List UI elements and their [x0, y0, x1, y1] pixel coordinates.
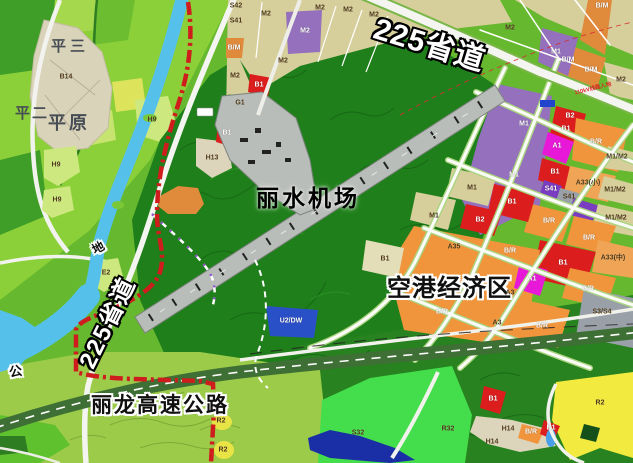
- river-island: [143, 114, 157, 122]
- parcel-R2-small: [214, 441, 234, 459]
- parcel-R2: [552, 372, 633, 460]
- parcel-M2-purple: [286, 10, 322, 54]
- parcel-BM: [226, 38, 244, 58]
- parcel-U2DW: [266, 306, 318, 338]
- station-chip: [540, 100, 555, 107]
- bridge-label-chip: [197, 108, 213, 116]
- map-canvas: [0, 0, 633, 463]
- river-island: [112, 201, 124, 209]
- planning-map: 225省道 225省道 丽水机场 空港经济区 丽龙高速公路 平三 平二 平原 地…: [0, 0, 633, 463]
